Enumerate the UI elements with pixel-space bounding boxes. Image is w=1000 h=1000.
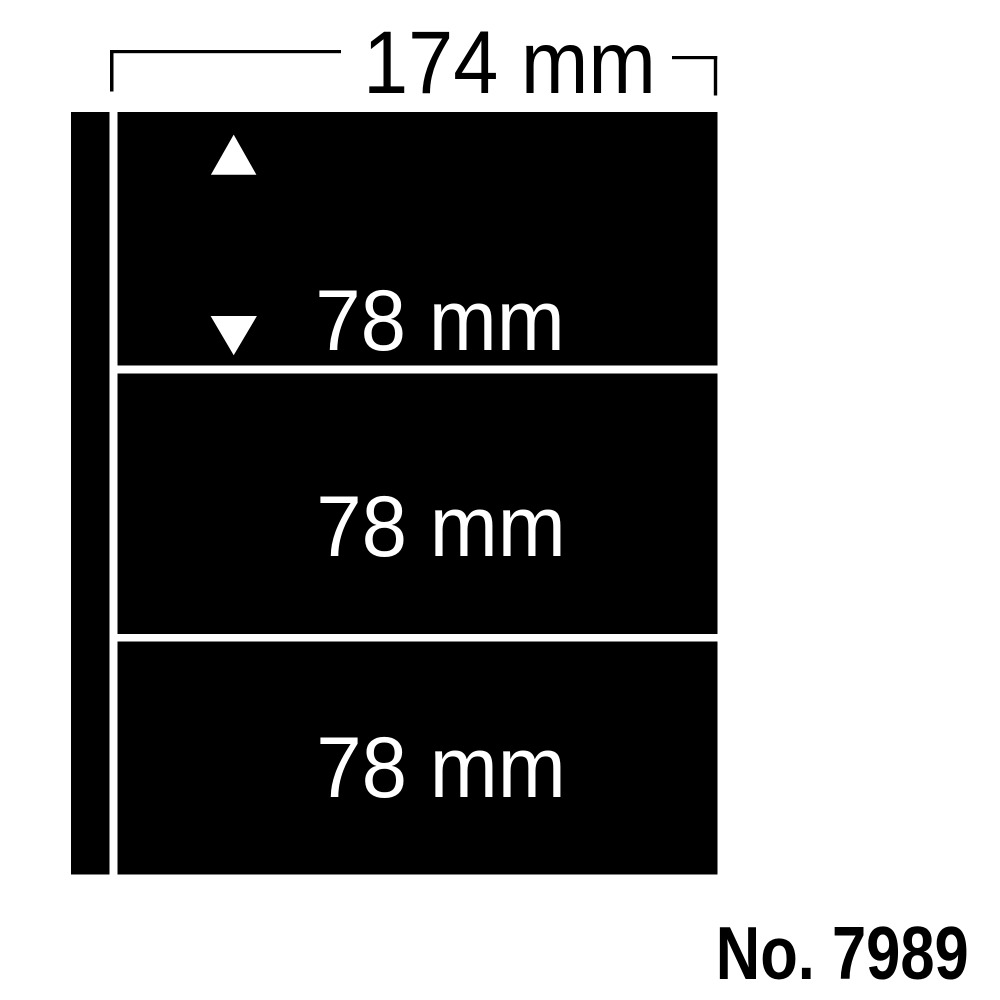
- svg-text:No. 7989: No. 7989: [716, 911, 969, 995]
- svg-text:174 mm: 174 mm: [363, 13, 656, 112]
- svg-text:78 mm: 78 mm: [315, 272, 565, 368]
- svg-text:78 mm: 78 mm: [316, 719, 566, 815]
- svg-text:78 mm: 78 mm: [316, 478, 566, 574]
